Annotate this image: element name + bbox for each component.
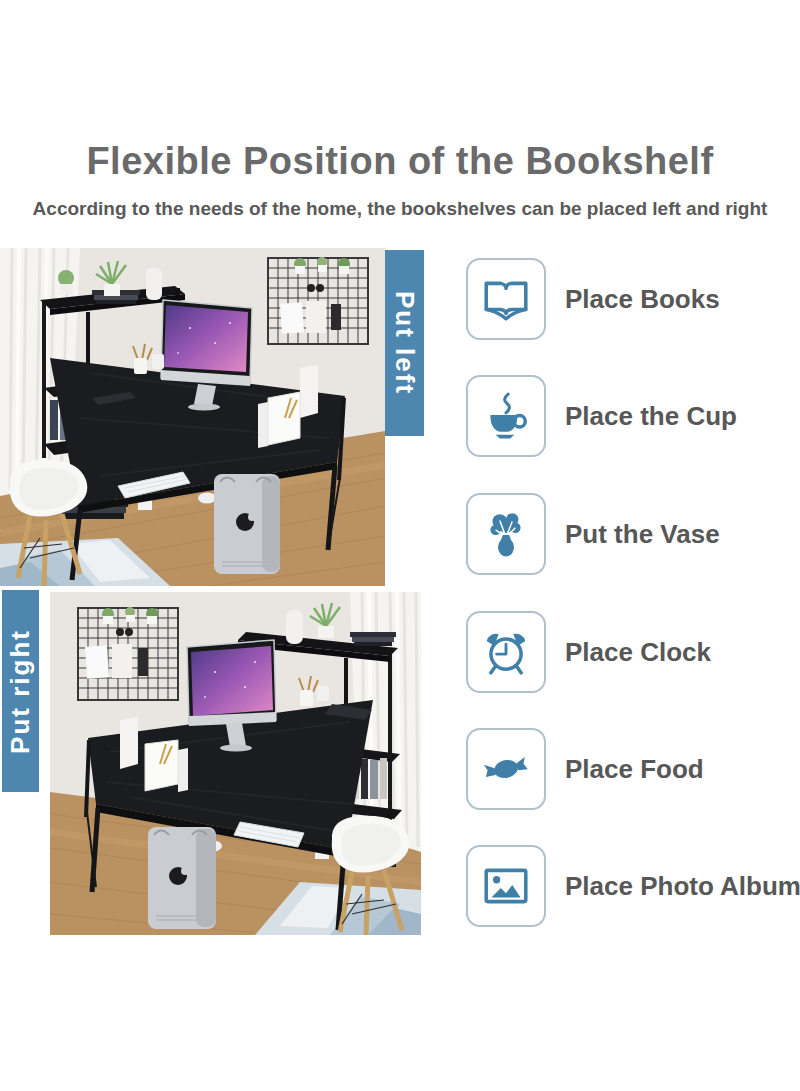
computer-tower xyxy=(148,827,216,929)
feature-row-cup: Place the Cup xyxy=(466,375,737,457)
feature-row-food: Place Food xyxy=(466,728,704,810)
candy-icon xyxy=(466,728,546,810)
desk-scene-left-illustration xyxy=(0,248,385,586)
feature-row-vase: Put the Vase xyxy=(466,493,720,575)
desk-photo-bookshelf-right xyxy=(50,592,421,935)
feature-row-clock: Place Clock xyxy=(466,611,711,693)
feature-label: Place Photo Album xyxy=(565,871,800,902)
feature-label: Place Clock xyxy=(565,637,711,668)
put-right-banner: Put right xyxy=(2,590,39,792)
feature-row-photo: Place Photo Album xyxy=(466,845,800,927)
photo-icon xyxy=(466,845,546,927)
put-right-label: Put right xyxy=(5,629,36,754)
coffee-cup-icon xyxy=(466,375,546,457)
computer-tower xyxy=(214,474,280,574)
product-infographic: { "header": { "title": "Flexible Positio… xyxy=(0,0,800,1091)
feature-row-books: Place Books xyxy=(466,258,720,340)
mouse xyxy=(198,493,216,504)
feature-label: Place the Cup xyxy=(565,401,737,432)
put-left-banner: Put left xyxy=(385,250,424,436)
put-left-label: Put left xyxy=(389,291,420,395)
feature-label: Place Books xyxy=(565,284,720,315)
page-subtitle: According to the needs of the home, the … xyxy=(0,198,800,220)
alarm-clock-icon xyxy=(466,611,546,693)
feature-label: Put the Vase xyxy=(565,519,720,550)
page-title: Flexible Position of the Bookshelf xyxy=(0,140,800,183)
feature-label: Place Food xyxy=(565,754,704,785)
desk-photo-bookshelf-left xyxy=(0,248,385,586)
vase-icon xyxy=(466,493,546,575)
desk-scene-right-illustration xyxy=(50,592,421,935)
open-book-icon xyxy=(466,258,546,340)
